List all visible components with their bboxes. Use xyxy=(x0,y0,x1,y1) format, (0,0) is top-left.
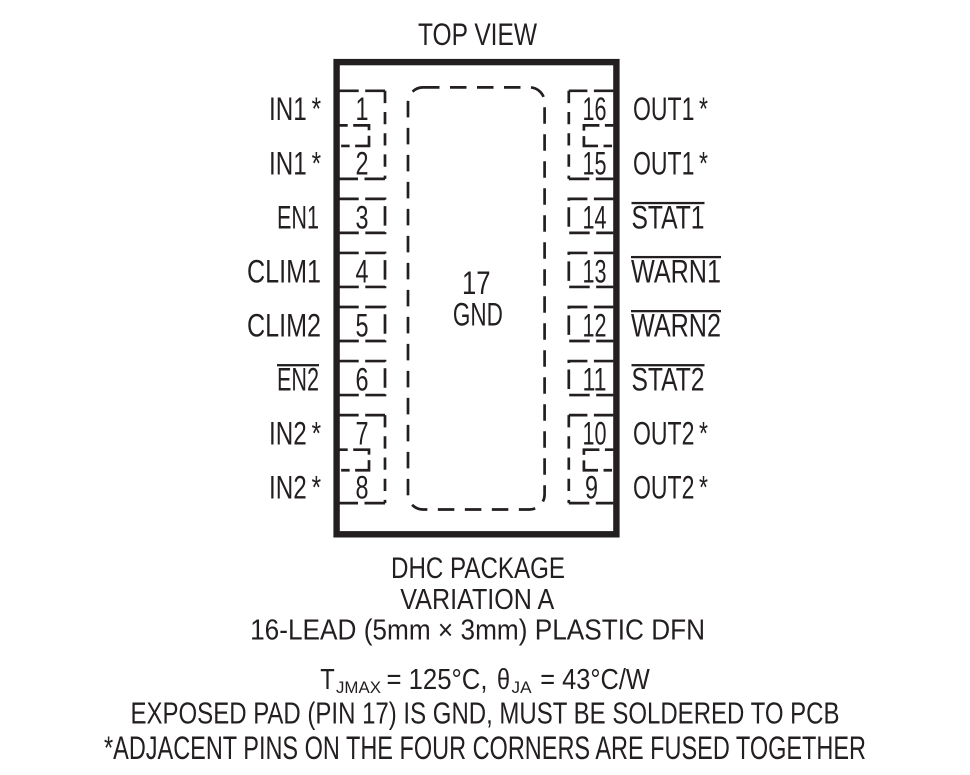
svg-text:6: 6 xyxy=(356,361,369,397)
svg-text:OUT1 *: OUT1 * xyxy=(633,91,708,127)
svg-text:IN1 *: IN1 * xyxy=(269,145,321,181)
svg-text:= 125°C,: = 125°C, xyxy=(387,664,488,696)
svg-text:8: 8 xyxy=(356,470,369,506)
svg-text:*ADJACENT PINS ON THE FOUR COR: *ADJACENT PINS ON THE FOUR CORNERS ARE F… xyxy=(104,730,866,766)
svg-text:4: 4 xyxy=(356,253,369,289)
svg-text:OUT1 *: OUT1 * xyxy=(633,145,708,181)
svg-text:T: T xyxy=(320,664,335,696)
svg-text:OUT2 *: OUT2 * xyxy=(633,416,708,452)
svg-text:TOP VIEW: TOP VIEW xyxy=(418,16,537,52)
svg-text:13: 13 xyxy=(583,253,607,289)
svg-text:θ: θ xyxy=(497,664,510,696)
svg-text:IN2 *: IN2 * xyxy=(269,416,321,452)
svg-text:STAT2: STAT2 xyxy=(632,361,705,397)
svg-text:EXPOSED PAD (PIN 17) IS GND, M: EXPOSED PAD (PIN 17) IS GND, MUST BE SOL… xyxy=(131,696,840,731)
svg-text:16-LEAD (5mm × 3mm) PLASTIC DF: 16-LEAD (5mm × 3mm) PLASTIC DFN xyxy=(250,615,705,647)
svg-text:EN1: EN1 xyxy=(277,199,319,235)
svg-text:7: 7 xyxy=(356,416,369,452)
svg-text:5: 5 xyxy=(356,307,369,343)
svg-text:STAT1: STAT1 xyxy=(632,199,705,235)
svg-text:EN2: EN2 xyxy=(277,361,319,397)
svg-text:JMAX: JMAX xyxy=(336,678,381,697)
svg-text:WARN1: WARN1 xyxy=(631,253,721,289)
svg-text:JA: JA xyxy=(512,678,533,697)
svg-text:11: 11 xyxy=(583,361,607,397)
svg-text:IN2 *: IN2 * xyxy=(269,470,321,506)
svg-text:15: 15 xyxy=(583,145,607,181)
svg-text:OUT2 *: OUT2 * xyxy=(633,470,708,506)
svg-text:16: 16 xyxy=(583,91,607,127)
svg-text:= 43°C/W: = 43°C/W xyxy=(540,664,650,696)
svg-text:GND: GND xyxy=(453,296,503,332)
svg-text:CLIM2: CLIM2 xyxy=(247,307,321,343)
svg-text:3: 3 xyxy=(356,199,369,235)
svg-text:CLIM1: CLIM1 xyxy=(247,253,321,289)
svg-text:12: 12 xyxy=(583,307,607,343)
svg-text:1: 1 xyxy=(356,91,369,127)
svg-text:IN1 *: IN1 * xyxy=(269,91,321,127)
svg-text:WARN2: WARN2 xyxy=(631,307,721,343)
svg-text:DHC PACKAGE: DHC PACKAGE xyxy=(391,552,565,585)
svg-text:VARIATION A: VARIATION A xyxy=(400,584,555,616)
svg-text:9: 9 xyxy=(585,470,598,506)
svg-text:2: 2 xyxy=(356,145,369,181)
svg-text:10: 10 xyxy=(583,416,607,452)
svg-text:14: 14 xyxy=(583,199,607,235)
